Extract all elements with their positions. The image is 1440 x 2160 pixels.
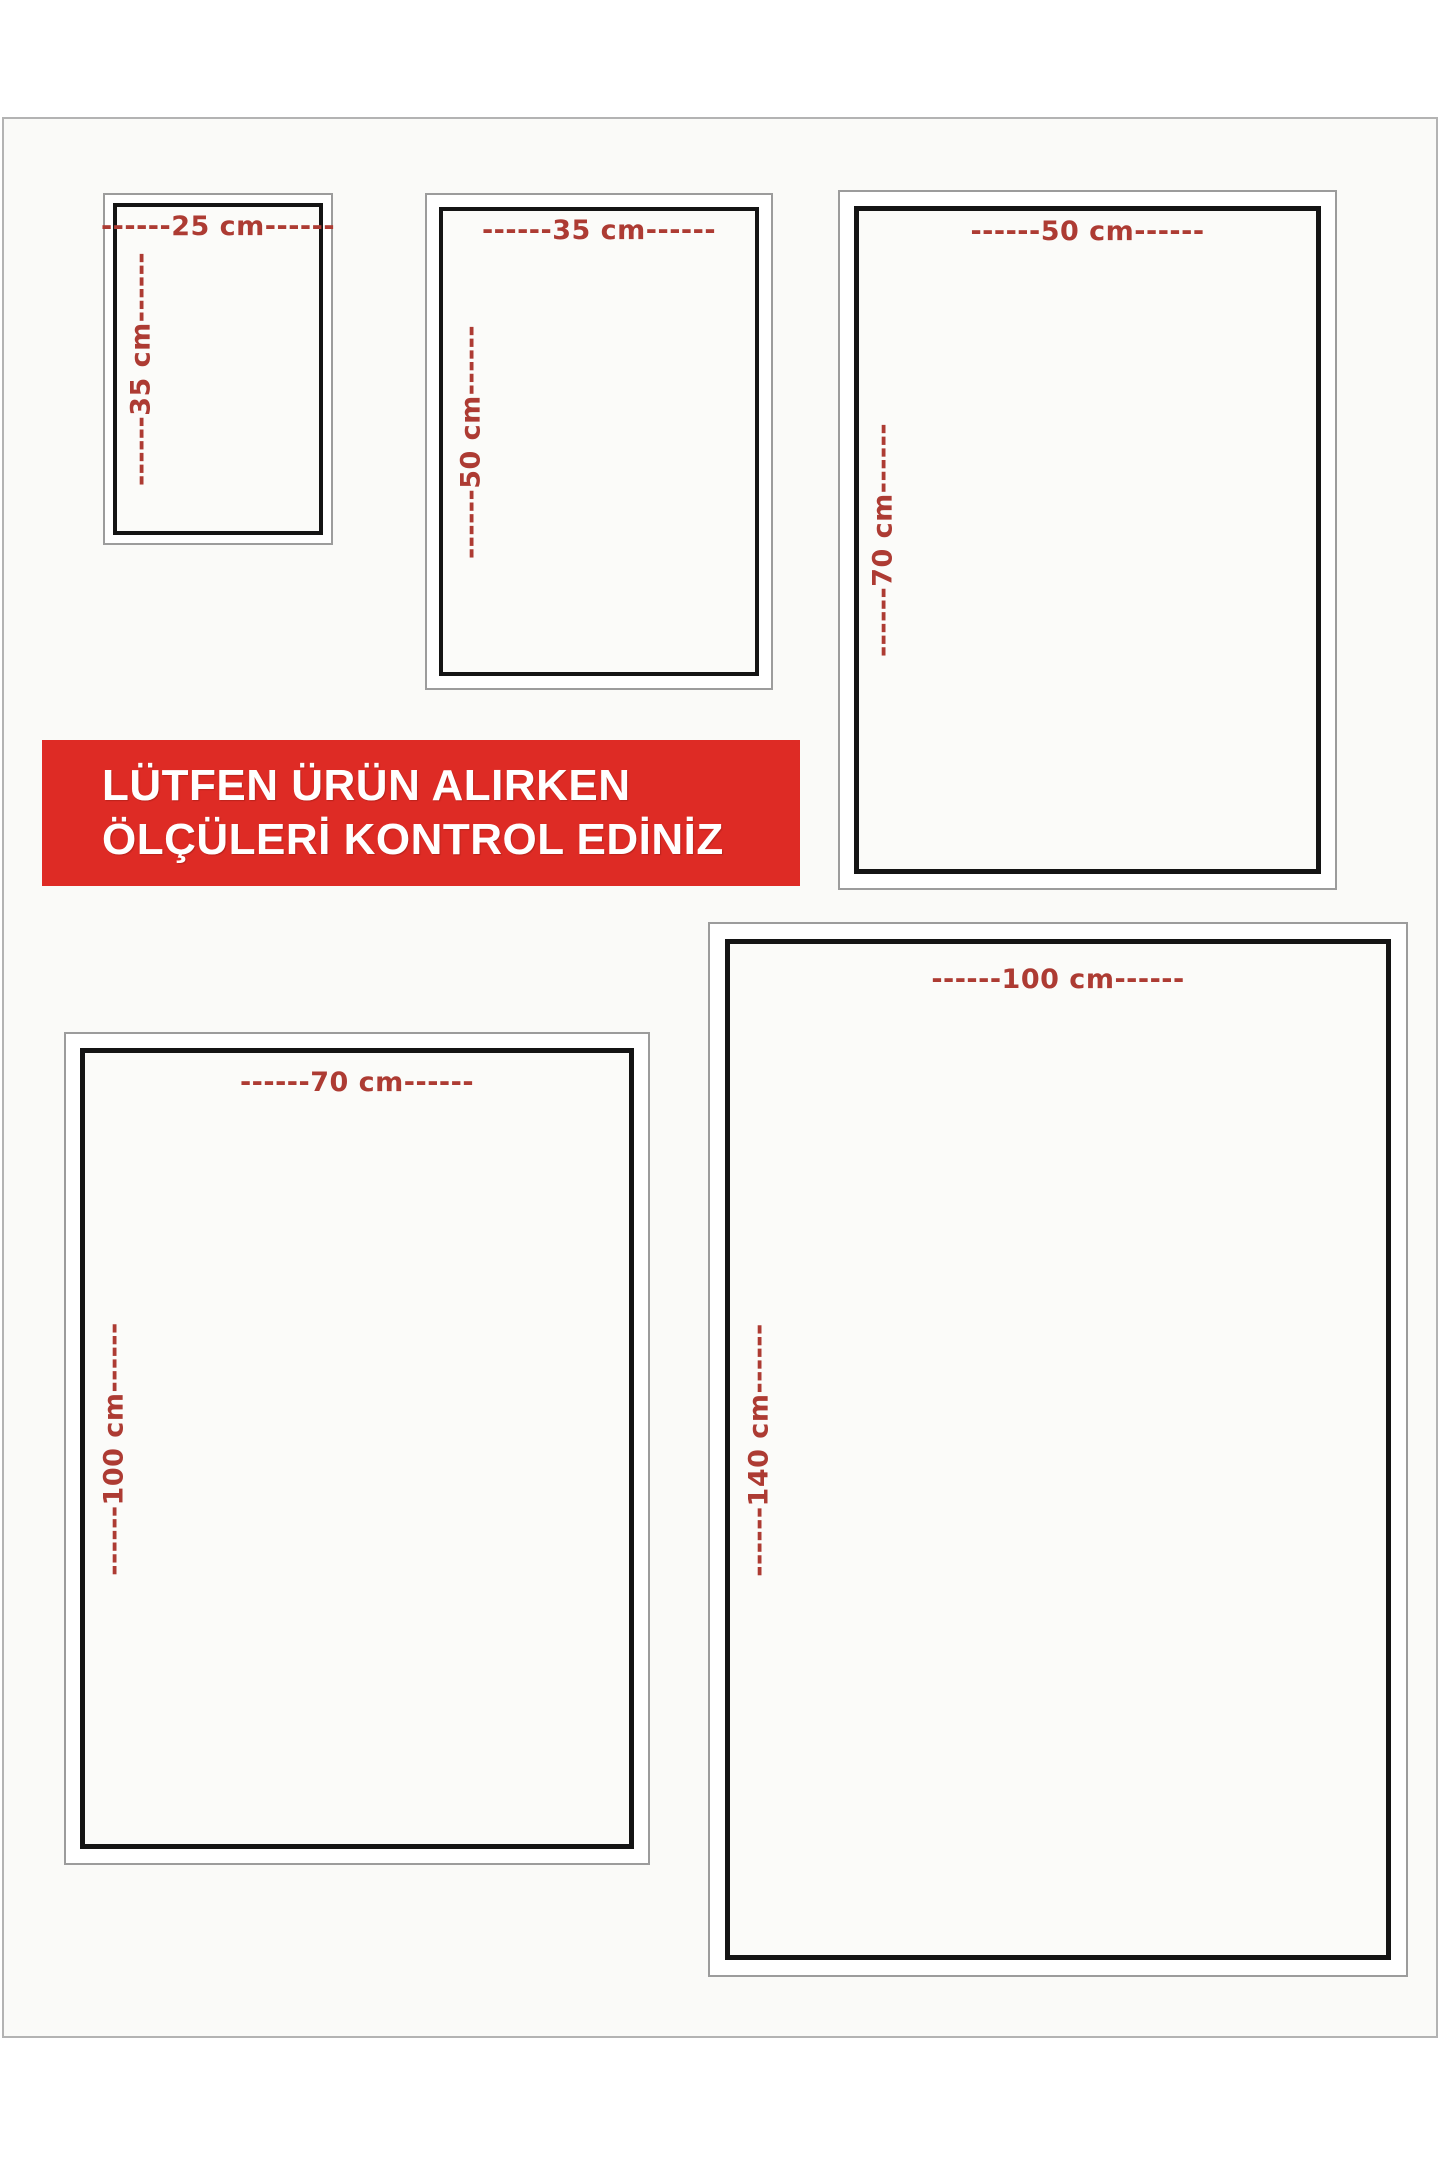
height-dimension-label: ------140 cm------ xyxy=(746,1323,773,1576)
warning-banner: LÜTFEN ÜRÜN ALIRKEN ÖLÇÜLERİ KONTROL EDİ… xyxy=(42,740,800,886)
warning-banner-line-1: LÜTFEN ÜRÜN ALIRKEN xyxy=(102,763,800,809)
width-dimension-label: ------25 cm------ xyxy=(101,213,335,240)
width-dimension-label: ------35 cm------ xyxy=(482,217,716,244)
size-chart-infographic: ------25 cm------ ------35 cm------ ----… xyxy=(0,0,1440,2160)
height-dimension-label: ------50 cm------ xyxy=(458,324,485,558)
size-box-25x35: ------25 cm------ ------35 cm------ xyxy=(103,193,333,545)
width-dimension-label: ------100 cm------ xyxy=(931,966,1184,993)
size-box-50x70-frame: ------50 cm------ ------70 cm------ xyxy=(854,206,1321,874)
height-dimension-label: ------35 cm------ xyxy=(128,252,155,486)
width-dimension-label: ------70 cm------ xyxy=(240,1069,474,1096)
size-box-50x70: ------50 cm------ ------70 cm------ xyxy=(838,190,1337,890)
width-dimension-label: ------50 cm------ xyxy=(970,218,1204,245)
size-box-100x140: ------100 cm------ ------140 cm------ xyxy=(708,922,1408,1977)
size-box-70x100-frame: ------70 cm------ ------100 cm------ xyxy=(80,1048,634,1849)
height-dimension-label: ------100 cm------ xyxy=(101,1322,128,1575)
size-box-35x50: ------35 cm------ ------50 cm------ xyxy=(425,193,773,690)
warning-banner-line-2: ÖLÇÜLERİ KONTROL EDİNİZ xyxy=(102,817,800,863)
height-dimension-label: ------70 cm------ xyxy=(870,423,897,657)
size-box-100x140-frame: ------100 cm------ ------140 cm------ xyxy=(725,939,1391,1960)
size-box-25x35-frame: ------25 cm------ ------35 cm------ xyxy=(113,203,323,535)
size-box-70x100: ------70 cm------ ------100 cm------ xyxy=(64,1032,650,1865)
size-box-35x50-frame: ------35 cm------ ------50 cm------ xyxy=(439,207,759,676)
